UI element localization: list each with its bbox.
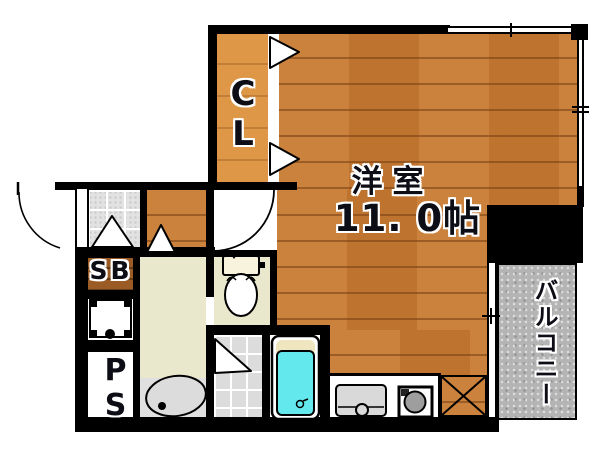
floor-plan: 洋室 11. 0帖 CL SB PS バルコニー [0, 0, 600, 450]
washer-pan-corner [90, 330, 97, 337]
closet-door-triangle [270, 37, 299, 68]
washer-pan-corner [124, 330, 131, 337]
bathtub-drain [297, 401, 304, 408]
pipe-space-label: PS [95, 353, 131, 419]
entry-door-triangle [92, 216, 133, 247]
main-room-label: 洋室 [300, 166, 485, 199]
washer-pan-corner [90, 300, 97, 307]
toilet-bowl [225, 274, 257, 316]
washbasin-faucet [158, 402, 166, 410]
shoe-box-label: SB [86, 258, 136, 284]
hall-step-triangle [147, 225, 175, 252]
entry-door-swing-arc [19, 192, 60, 248]
washbasin [144, 372, 209, 420]
room-door-swing-arc [213, 190, 274, 251]
washer-pan-corner [124, 300, 131, 307]
stove-burner [405, 392, 426, 413]
closet-door-triangle [270, 143, 299, 175]
bathtub-water [277, 351, 314, 415]
washer-drain [105, 329, 115, 339]
bathroom-door-triangle [215, 339, 251, 373]
main-room-size-label: 11. 0帖 [280, 200, 535, 239]
entry-door-leaf [76, 188, 88, 248]
toilet-tank [223, 256, 259, 275]
sink-drain [356, 404, 368, 416]
closet-label: CL [218, 58, 260, 170]
balcony-label: バルコニー [518, 266, 556, 420]
toilet-handle [258, 262, 265, 268]
